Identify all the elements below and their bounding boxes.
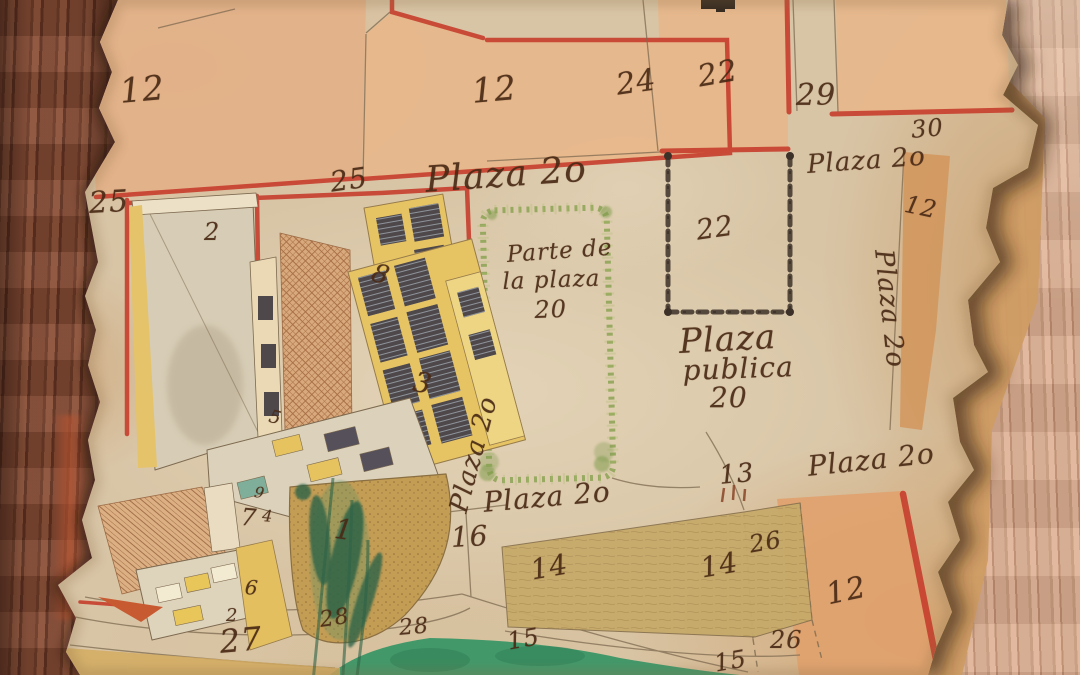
framed-map: 121224222930Plaza 2o12Plaza 2o2525Plaza … bbox=[0, 0, 1080, 675]
parchment-sheet bbox=[0, 0, 1080, 675]
